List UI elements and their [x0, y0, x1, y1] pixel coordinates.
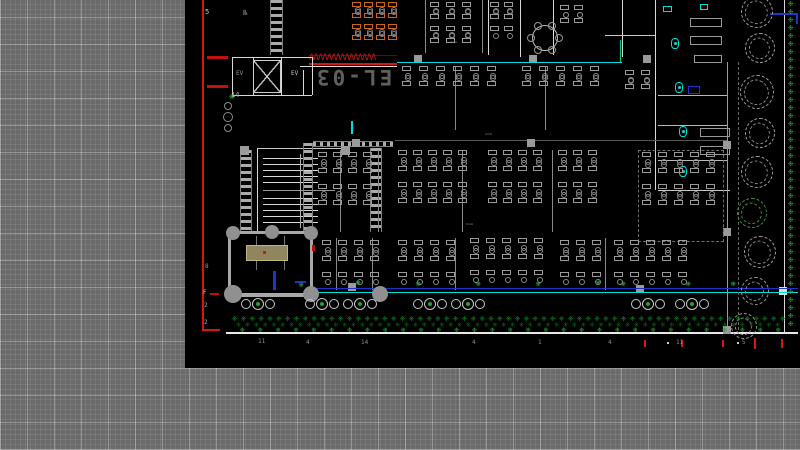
desk-symbol — [706, 184, 715, 189]
desk-symbol — [446, 26, 455, 31]
column — [527, 139, 535, 147]
desk-symbol — [592, 256, 601, 261]
terrace-chair — [316, 298, 328, 310]
dim-value: 4 — [472, 340, 476, 346]
desk-symbol — [462, 2, 471, 7]
desk-symbol — [388, 13, 397, 18]
annotation: ⋯⋯ — [485, 132, 492, 138]
plant-symbol: ❋ — [299, 281, 304, 290]
desk-symbol — [443, 182, 452, 187]
mark-f: F — [203, 290, 207, 296]
desk-symbol — [706, 200, 715, 205]
desk-symbol — [348, 152, 357, 157]
toilet-fixture — [679, 126, 687, 137]
plant-symbol: ❋ — [356, 279, 361, 288]
tree-inner — [746, 35, 774, 63]
desk-symbol — [534, 270, 543, 275]
desk-symbol — [388, 35, 397, 40]
desk-symbol — [318, 184, 327, 189]
desk-symbol — [398, 198, 407, 203]
ev-label: EV — [236, 71, 243, 77]
grip-handle[interactable] — [265, 225, 279, 239]
desk-symbol — [318, 200, 327, 205]
desk-symbol — [486, 238, 495, 243]
tree-inner — [744, 237, 775, 268]
desk-symbol — [333, 152, 342, 157]
desk-symbol — [446, 256, 455, 261]
chair — [527, 34, 535, 42]
desk-symbol — [539, 66, 548, 71]
desk-symbol — [488, 166, 497, 171]
terrace-chair — [252, 298, 264, 310]
terrace-chair — [686, 298, 698, 310]
desk-symbol — [614, 240, 623, 245]
desk-symbol — [522, 66, 531, 71]
red-dim-tick — [781, 339, 783, 348]
desk-symbol — [518, 270, 527, 275]
terrace-chair — [699, 299, 709, 309]
desk-symbol — [574, 18, 583, 23]
desk-symbol — [333, 168, 342, 173]
desk-symbol — [370, 256, 379, 261]
desk-symbol — [556, 81, 565, 86]
desk-symbol — [503, 166, 512, 171]
desk-symbol — [490, 26, 499, 31]
terrace-chair — [265, 299, 275, 309]
desk-symbol — [592, 240, 601, 245]
desk-symbol — [558, 198, 567, 203]
desk-symbol — [398, 272, 407, 277]
mark-8: 8 — [205, 264, 209, 270]
desk-symbol — [322, 256, 331, 261]
desk-symbol — [678, 256, 687, 261]
dim-value: 4 — [608, 340, 612, 346]
desk-symbol — [674, 200, 683, 205]
mark-2b: 2 — [204, 320, 208, 326]
desk-symbol — [443, 150, 452, 155]
desk-symbol — [573, 182, 582, 187]
tree-symbol — [741, 156, 773, 188]
wall — [488, 0, 489, 55]
stair-rail-hatch — [270, 0, 283, 55]
desk-symbol — [470, 66, 479, 71]
desk-symbol — [413, 150, 422, 155]
red-dim-tick — [644, 340, 646, 347]
desk-symbol — [503, 182, 512, 187]
desk-symbol — [588, 150, 597, 155]
annotation: ⋯⋯ — [466, 222, 473, 228]
desk-symbol — [398, 166, 407, 171]
desk-symbol — [658, 168, 667, 173]
blue-mark — [796, 14, 798, 24]
desk-symbol — [662, 240, 671, 245]
desk-symbol — [446, 272, 455, 277]
plant-symbol: ❋ — [416, 280, 421, 289]
desk-symbol — [641, 84, 650, 89]
desk-symbol — [642, 184, 651, 189]
wall — [658, 95, 727, 96]
desk-symbol — [348, 200, 357, 205]
right-border-wall — [784, 0, 785, 332]
desk-symbol — [458, 198, 467, 203]
left-border-red — [202, 0, 204, 331]
desk-symbol — [462, 14, 471, 19]
wall — [232, 57, 233, 95]
mark-14: 14 — [231, 92, 239, 99]
blue-fixture — [688, 86, 700, 94]
tree-inner — [740, 76, 773, 109]
column — [643, 55, 651, 63]
desk-symbol — [576, 240, 585, 245]
wall — [605, 35, 655, 36]
desk-symbol — [518, 198, 527, 203]
plant-dot — [646, 302, 650, 306]
mark-5: 5 — [205, 9, 209, 16]
desk-symbol — [446, 14, 455, 19]
desk-symbol — [576, 256, 585, 261]
desk-symbol — [414, 240, 423, 245]
plant-symbol: ❋ — [621, 280, 626, 289]
desk-symbol — [338, 256, 347, 261]
terrace-chair — [305, 299, 315, 309]
desk-symbol — [363, 184, 372, 189]
terrace-chair — [631, 299, 641, 309]
desk-symbol — [333, 184, 342, 189]
grip-handle[interactable] — [226, 226, 240, 240]
aisle — [378, 150, 379, 232]
desk-symbol — [414, 272, 423, 277]
cyan-zone-line — [727, 62, 728, 330]
elevator-block-text: EL-03 — [314, 66, 392, 87]
terrace-chair — [343, 299, 353, 309]
desk-symbol — [430, 38, 439, 43]
desk-symbol — [443, 198, 452, 203]
desk-symbol — [625, 70, 634, 75]
desk-symbol — [658, 152, 667, 157]
red-wall-stub — [207, 85, 228, 88]
desk-symbol — [590, 81, 599, 86]
dim-value: 5 — [742, 340, 746, 346]
desk-symbol — [398, 240, 407, 245]
ev-label: EV — [291, 71, 298, 77]
desk-symbol — [592, 272, 601, 277]
desk-symbol — [690, 152, 699, 157]
desk-symbol — [398, 256, 407, 261]
desk-symbol — [436, 81, 445, 86]
desk-symbol — [402, 66, 411, 71]
wc-dot — [674, 42, 677, 45]
tree-symbol — [745, 118, 775, 148]
desk-symbol — [453, 66, 462, 71]
dim-value: 11 — [676, 340, 683, 346]
desk-symbol — [678, 272, 687, 277]
stair-wall — [257, 148, 346, 149]
desk-symbol — [504, 2, 513, 7]
desk-symbol — [458, 182, 467, 187]
desk-symbol — [338, 240, 347, 245]
desk-symbol — [470, 238, 479, 243]
desk-symbol — [614, 272, 623, 277]
hatched-wall — [240, 150, 252, 232]
blue-mark — [770, 13, 798, 15]
tree-inner — [741, 157, 772, 188]
tree-inner — [742, 279, 767, 304]
column — [352, 139, 360, 147]
desk-symbol — [588, 182, 597, 187]
toilet-fixture — [675, 82, 683, 93]
desk-symbol — [573, 66, 582, 71]
desk-symbol — [364, 13, 373, 18]
tree-symbol — [744, 236, 776, 268]
desk-symbol — [363, 152, 372, 157]
desk-symbol — [490, 2, 499, 7]
desk-symbol — [658, 200, 667, 205]
dim-dot — [737, 342, 739, 344]
tree-inner — [738, 200, 766, 228]
desk-symbol — [376, 13, 385, 18]
plant-symbol: ❋ — [686, 280, 691, 289]
plant-column-right: ❉ — [788, 320, 793, 329]
grip-handle[interactable] — [224, 285, 242, 303]
desk-symbol — [558, 150, 567, 155]
desk-symbol — [398, 150, 407, 155]
plant-symbol: ❋ — [596, 279, 601, 288]
desk-symbol — [560, 18, 569, 23]
desk-symbol — [333, 200, 342, 205]
desk-symbol — [539, 81, 548, 86]
cyan-fixture — [700, 4, 708, 10]
meeting-table — [700, 128, 730, 137]
desk-symbol — [413, 198, 422, 203]
desk-symbol — [518, 254, 527, 259]
cad-workspace: ΛΛΛΛΛΛΛΛΛΛΛΛΛΛΛ❋❋❋❋❋❋❋❋❋❋❈❈❈❈❈❈❈❈❈❈❈❈❈❈❈… — [0, 0, 800, 450]
desk-symbol — [658, 184, 667, 189]
desk-symbol — [363, 168, 372, 173]
desk-symbol — [573, 166, 582, 171]
desk-symbol — [430, 2, 439, 7]
red-hatch-zigzag: ΛΛΛΛΛΛΛΛΛΛΛΛΛΛΛ — [309, 54, 375, 63]
desk-symbol — [522, 81, 531, 86]
desk-symbol — [533, 166, 542, 171]
wc-dot — [682, 130, 685, 133]
red-wall-stub — [207, 56, 228, 59]
plant-dot — [428, 302, 432, 306]
desk-symbol — [678, 240, 687, 245]
dim-dot — [667, 342, 669, 344]
desk-symbol — [573, 198, 582, 203]
desk-symbol — [428, 198, 437, 203]
hedge-row: ❉❉❉❉❉❉❉❉❉❉❉❉❉❉❉❉❉❉❉❉❉❉❉❉❉❉❉❉❉❉❉ — [240, 326, 794, 334]
terrace-chair — [424, 298, 436, 310]
desk-symbol — [430, 26, 439, 31]
chair — [534, 22, 542, 30]
desk-symbol — [413, 182, 422, 187]
desk-symbol — [430, 14, 439, 19]
dashed-boundary — [738, 62, 739, 330]
desk-symbol — [646, 272, 655, 277]
wall — [303, 70, 304, 95]
desk-symbol — [470, 81, 479, 86]
grip-handle[interactable] — [304, 226, 318, 240]
chair — [555, 34, 563, 42]
desk-symbol — [558, 182, 567, 187]
desk-symbol — [462, 38, 471, 43]
desk-symbol — [614, 256, 623, 261]
desk-symbol — [354, 256, 363, 261]
plant-dot — [690, 302, 694, 306]
desk-symbol — [352, 13, 361, 18]
aisle — [605, 238, 606, 290]
terrace-chair — [462, 298, 474, 310]
dim-value: 1 — [538, 340, 542, 346]
desk-symbol — [625, 84, 634, 89]
annotation: ⋯⋯ — [450, 40, 457, 46]
desk-symbol — [642, 168, 651, 173]
desk-symbol — [348, 184, 357, 189]
cyan-zone-line — [397, 62, 622, 63]
desk-symbol — [630, 272, 639, 277]
plant-dot — [320, 302, 324, 306]
plant-symbol: ❋ — [536, 280, 541, 289]
terrace-chair — [367, 299, 377, 309]
desk-symbol — [428, 182, 437, 187]
desk-symbol — [462, 26, 471, 31]
terrace-chair — [642, 298, 654, 310]
wall — [312, 57, 313, 95]
desk-symbol — [430, 256, 439, 261]
desk-symbol — [443, 166, 452, 171]
wall — [232, 57, 312, 58]
cyan-mark — [351, 121, 353, 134]
desk-symbol — [588, 166, 597, 171]
desk-symbol — [487, 66, 496, 71]
selected-desk-dot — [263, 251, 266, 254]
meeting-table — [694, 55, 722, 63]
tree-symbol — [741, 277, 769, 305]
desk-symbol — [642, 152, 651, 157]
desk-symbol — [560, 5, 569, 10]
desk-symbol — [488, 198, 497, 203]
desk-symbol — [502, 238, 511, 243]
wc-dot — [678, 86, 681, 89]
desk-symbol — [576, 272, 585, 277]
desk-symbol — [690, 200, 699, 205]
desk-symbol — [630, 240, 639, 245]
desk-symbol — [364, 35, 373, 40]
desk-symbol — [518, 182, 527, 187]
desk-symbol — [556, 66, 565, 71]
hatched-wall — [303, 143, 313, 233]
stair-wall — [257, 148, 258, 232]
desk-symbol — [533, 182, 542, 187]
desk-symbol — [354, 272, 363, 277]
desk-symbol — [518, 166, 527, 171]
symbol — [224, 102, 232, 110]
terrace-chair — [451, 299, 461, 309]
desk-symbol — [560, 256, 569, 261]
desk-symbol — [428, 166, 437, 171]
aisle — [552, 150, 553, 232]
desk-symbol — [518, 150, 527, 155]
desk-symbol — [338, 272, 347, 277]
desk-symbol — [560, 272, 569, 277]
wall — [232, 95, 312, 96]
desk-symbol — [642, 200, 651, 205]
desk-symbol — [488, 150, 497, 155]
desk-symbol — [487, 81, 496, 86]
desk-symbol — [646, 240, 655, 245]
desk-symbol — [533, 198, 542, 203]
desk-symbol — [534, 238, 543, 243]
wall — [520, 0, 521, 57]
chair — [548, 22, 556, 30]
red-dim-tick — [210, 293, 219, 295]
selected-desk — [246, 245, 288, 261]
desk-symbol — [534, 254, 543, 259]
desk-symbol — [646, 256, 655, 261]
terrace-chair — [437, 299, 447, 309]
desk-symbol — [458, 166, 467, 171]
stair-rail — [300, 154, 301, 228]
red-dim-tick — [754, 338, 756, 349]
tree-inner — [746, 120, 774, 148]
desk-symbol — [590, 66, 599, 71]
desk-symbol — [470, 254, 479, 259]
aisle — [425, 0, 426, 53]
desk-symbol — [503, 198, 512, 203]
aisle — [482, 0, 483, 53]
desk-symbol — [348, 168, 357, 173]
shaft-x-box — [253, 60, 281, 93]
tree-inner — [741, 0, 772, 28]
dim-value: 4 — [306, 340, 310, 346]
desk-symbol — [322, 272, 331, 277]
desk-symbol — [413, 166, 422, 171]
terrace-chair — [655, 299, 665, 309]
tree-symbol — [745, 33, 775, 63]
bottom-corner-red — [203, 329, 220, 331]
desk-symbol — [690, 168, 699, 173]
desk-symbol — [486, 254, 495, 259]
teal-mark — [620, 40, 621, 62]
desk-symbol — [430, 272, 439, 277]
mark-2a: 2 — [204, 303, 208, 309]
cyan-fixture — [663, 6, 672, 12]
symbol — [223, 112, 233, 122]
terrace-chair — [354, 298, 366, 310]
plant-symbol: ❋ — [731, 280, 736, 289]
desk-symbol — [504, 14, 513, 19]
desk-symbol — [574, 5, 583, 10]
symbol — [224, 124, 232, 132]
desk-symbol — [641, 70, 650, 75]
desk-symbol — [662, 272, 671, 277]
desk-symbol — [588, 198, 597, 203]
desk-symbol — [436, 66, 445, 71]
desk-symbol — [446, 2, 455, 7]
desk-symbol — [573, 81, 582, 86]
desk-symbol — [402, 81, 411, 86]
desk-symbol — [706, 168, 715, 173]
desk-symbol — [419, 81, 428, 86]
terrace-chair — [413, 299, 423, 309]
tree-symbol — [737, 198, 767, 228]
desk-symbol — [706, 152, 715, 157]
chair — [534, 46, 542, 54]
desk-symbol — [470, 270, 479, 275]
desk-symbol — [503, 150, 512, 155]
desk-symbol — [486, 270, 495, 275]
